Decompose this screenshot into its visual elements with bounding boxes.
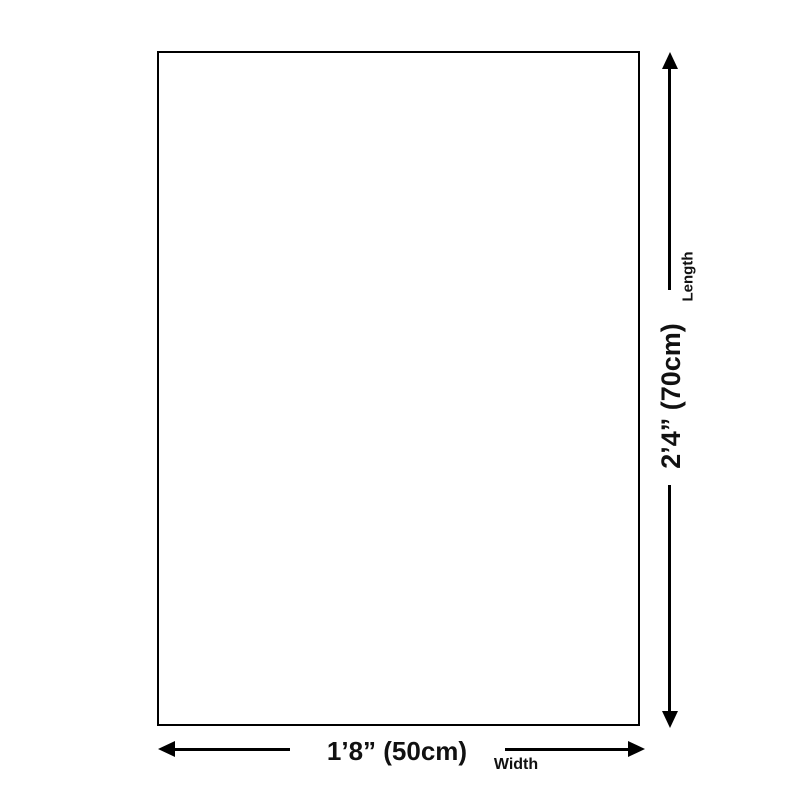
length-dimension-line-bottom xyxy=(668,485,671,713)
width-dimension-line-left xyxy=(170,748,290,751)
length-value: 2’4” (70cm) xyxy=(655,296,687,496)
arrow-right-icon xyxy=(628,741,645,757)
width-dimension-line-right xyxy=(505,748,629,751)
length-dimension-line-top xyxy=(668,64,671,290)
arrow-down-icon xyxy=(662,711,678,728)
size-diagram: Length 2’4” (70cm) 1’8” (50cm) Width xyxy=(0,0,800,800)
product-outline-rectangle xyxy=(157,51,640,726)
width-axis-label: Width xyxy=(466,756,566,774)
